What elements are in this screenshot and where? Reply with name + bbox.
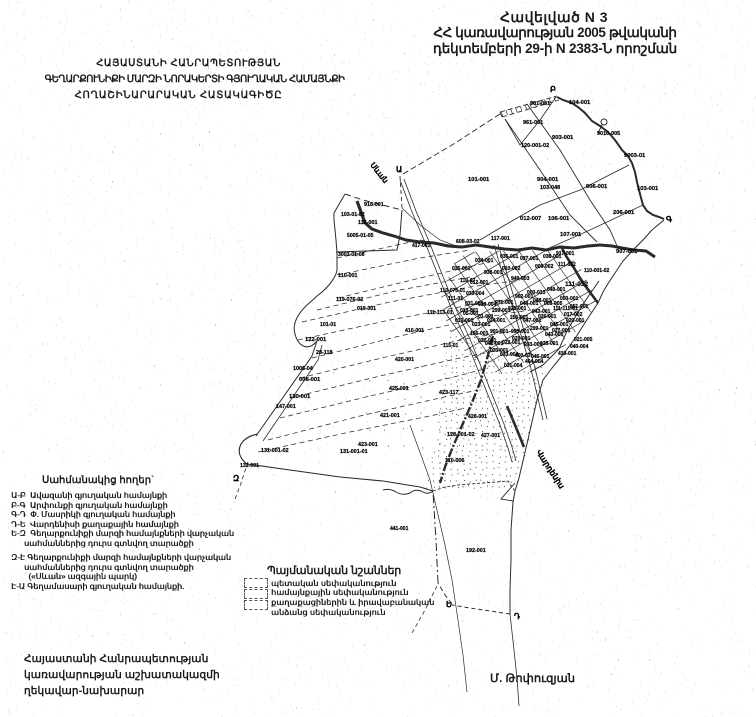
svg-text:1006-04: 1006-04	[293, 366, 313, 372]
svg-text:423-001: 423-001	[358, 442, 378, 448]
svg-text:039-004: 039-004	[478, 302, 497, 308]
svg-text:608-03-02: 608-03-02	[456, 239, 480, 245]
svg-text:025-001: 025-001	[508, 306, 527, 312]
svg-text:9003-01: 9003-01	[624, 153, 646, 159]
svg-text:030-001: 030-001	[490, 348, 509, 354]
svg-text:028-001: 028-001	[540, 341, 559, 347]
svg-text:010-002: 010-002	[502, 266, 521, 272]
svg-text:Սևան: Սևան	[368, 161, 390, 185]
svg-text:036-001: 036-001	[500, 254, 519, 260]
svg-text:426-001: 426-001	[468, 414, 487, 420]
svg-text:427-001: 427-001	[481, 433, 500, 439]
svg-text:110-006: 110-006	[445, 458, 465, 464]
svg-text:110-075-01: 110-075-01	[440, 288, 466, 294]
svg-text:035-001: 035-001	[452, 266, 471, 272]
svg-text:031-004: 031-004	[504, 363, 523, 369]
svg-text:103-001: 103-001	[637, 186, 659, 192]
svg-text:103-01-02: 103-01-02	[341, 212, 365, 218]
svg-text:024-001: 024-001	[487, 318, 506, 324]
svg-text:106-001: 106-001	[548, 216, 570, 222]
svg-text:027-001: 027-001	[552, 328, 571, 334]
svg-text:9010-005: 9010-005	[597, 131, 620, 137]
svg-text:425-001: 425-001	[389, 386, 409, 392]
svg-text:111-01: 111-01	[448, 296, 463, 302]
svg-text:116-001: 116-001	[358, 220, 378, 226]
svg-text:040-004: 040-004	[570, 344, 589, 350]
svg-text:107-001: 107-001	[560, 232, 582, 238]
svg-text:128-001-02: 128-001-02	[447, 432, 475, 438]
svg-text:147-001: 147-001	[276, 404, 296, 410]
svg-text:010-001: 010-001	[455, 318, 474, 324]
svg-text:110-001: 110-001	[338, 273, 358, 279]
svg-text:131-001-01: 131-001-01	[340, 449, 368, 455]
svg-text:104-001: 104-001	[569, 100, 591, 106]
svg-text:130-001: 130-001	[289, 394, 311, 400]
svg-text:Զ: Զ	[233, 474, 239, 483]
svg-text:961-001: 961-001	[523, 120, 543, 126]
svg-text:918-001: 918-001	[364, 202, 384, 208]
svg-text:05-001: 05-001	[463, 311, 479, 317]
svg-text:117-001: 117-001	[491, 236, 510, 242]
svg-text:441-001: 441-001	[390, 526, 409, 532]
svg-text:050-001: 050-001	[560, 296, 579, 302]
svg-text:122-001: 122-001	[305, 337, 327, 343]
svg-text:419-001: 419-001	[558, 351, 577, 357]
svg-text:110-07: 110-07	[460, 278, 476, 284]
svg-text:903-001: 903-001	[552, 135, 574, 141]
svg-text:904-001: 904-001	[537, 177, 559, 183]
svg-text:012-007: 012-007	[520, 216, 541, 222]
svg-text:103-048: 103-048	[540, 185, 560, 191]
svg-text:009-002: 009-002	[535, 264, 554, 270]
svg-text:008-001: 008-001	[299, 377, 321, 383]
svg-text:949-003: 949-003	[511, 276, 530, 282]
svg-text:115-01: 115-01	[443, 343, 459, 349]
svg-text:991-001: 991-001	[490, 329, 509, 335]
svg-text:28-118: 28-118	[316, 350, 333, 356]
svg-text:Ա: Ա	[396, 165, 402, 174]
svg-text:404-004: 404-004	[525, 359, 544, 365]
svg-text:019-001: 019-001	[357, 306, 376, 312]
svg-text:3003-01-08: 3003-01-08	[338, 252, 365, 258]
svg-text:132-001: 132-001	[240, 463, 259, 469]
svg-text:119-076-02: 119-076-02	[336, 297, 363, 303]
svg-text:029-001: 029-001	[512, 336, 531, 342]
svg-text:020-001: 020-001	[566, 318, 585, 324]
svg-text:048-001: 048-001	[533, 298, 552, 304]
svg-text:993-001: 993-001	[511, 329, 530, 335]
svg-text:417-001: 417-001	[412, 243, 431, 249]
svg-text:111-115-01: 111-115-01	[553, 306, 578, 312]
svg-text:Վարդենիս: Վարդենիս	[534, 448, 566, 490]
svg-text:Դ: Դ	[514, 612, 520, 621]
svg-text:938-001: 938-001	[484, 270, 503, 276]
svg-text:047-001: 047-001	[523, 318, 542, 324]
svg-text:032-001: 032-001	[478, 338, 497, 344]
svg-text:420-001: 420-001	[395, 357, 414, 363]
svg-text:037-001: 037-001	[520, 256, 539, 262]
svg-text:111-113-01: 111-113-01	[427, 310, 453, 316]
svg-text:034-001: 034-001	[475, 258, 494, 264]
svg-text:021-005: 021-005	[574, 337, 593, 343]
svg-text:423-117: 423-117	[439, 390, 459, 396]
svg-text:907-001: 907-001	[616, 249, 638, 255]
svg-text:Ե: Ե	[446, 600, 452, 609]
svg-text:206-001: 206-001	[613, 210, 635, 216]
svg-text:901-001: 901-001	[530, 101, 550, 107]
svg-text:101-01: 101-01	[320, 322, 336, 328]
svg-text:906-001: 906-001	[586, 184, 608, 190]
svg-text:111-032: 111-032	[565, 281, 589, 288]
svg-text:962-001: 962-001	[515, 294, 534, 300]
svg-text:410-001: 410-001	[405, 328, 424, 334]
svg-text:Գ: Գ	[666, 215, 672, 224]
svg-text:049-001: 049-001	[547, 287, 566, 293]
svg-text:421-001: 421-001	[380, 413, 400, 419]
svg-text:110-001-02: 110-001-02	[584, 268, 610, 274]
svg-text:131-001-02: 131-001-02	[261, 448, 289, 454]
svg-text:120-001-02: 120-001-02	[521, 143, 549, 149]
svg-text:166-001: 166-001	[470, 331, 489, 337]
svg-text:192-001: 192-001	[466, 548, 486, 554]
svg-text:101-001: 101-001	[468, 177, 490, 183]
svg-text:5005-01-05: 5005-01-05	[347, 233, 374, 239]
svg-text:111-022: 111-022	[558, 262, 576, 268]
svg-text:038-001: 038-001	[543, 254, 562, 260]
